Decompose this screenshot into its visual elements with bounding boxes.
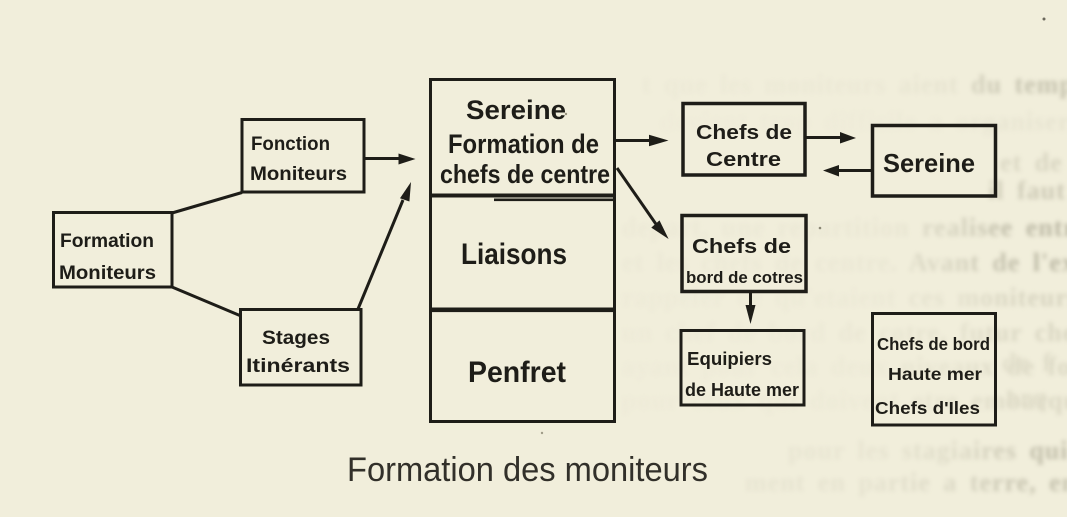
svg-text:Chefs de: Chefs de <box>692 236 791 258</box>
svg-text:Formation des moniteurs: Formation des moniteurs <box>347 451 708 489</box>
svg-text:Sereine: Sereine <box>466 95 566 125</box>
svg-text:Sereine: Sereine <box>883 148 975 178</box>
svg-text:Equipiers: Equipiers <box>687 349 772 369</box>
svg-text:bord de cotres: bord de cotres <box>686 268 803 287</box>
svg-text:Formation de: Formation de <box>448 129 599 159</box>
svg-text:Fonction: Fonction <box>251 134 330 155</box>
svg-text:Stages: Stages <box>262 328 330 349</box>
svg-text:Chefs de: Chefs de <box>696 122 792 144</box>
svg-text:Moniteurs: Moniteurs <box>250 164 347 185</box>
svg-text:chefs de centre: chefs de centre <box>440 159 610 189</box>
svg-text:Penfret: Penfret <box>468 356 566 389</box>
svg-text:de Haute mer: de Haute mer <box>685 380 799 400</box>
svg-text:Moniteurs: Moniteurs <box>59 263 156 284</box>
svg-text:Chefs d'Iles: Chefs d'Iles <box>875 398 980 418</box>
svg-text:Centre: Centre <box>706 149 781 171</box>
svg-text:Liaisons: Liaisons <box>461 238 567 271</box>
svg-text:Formation: Formation <box>60 231 154 252</box>
svg-text:Haute mer: Haute mer <box>888 364 982 384</box>
svg-text:Itinérants: Itinérants <box>246 356 350 377</box>
svg-text:Chefs de bord: Chefs de bord <box>877 334 990 354</box>
